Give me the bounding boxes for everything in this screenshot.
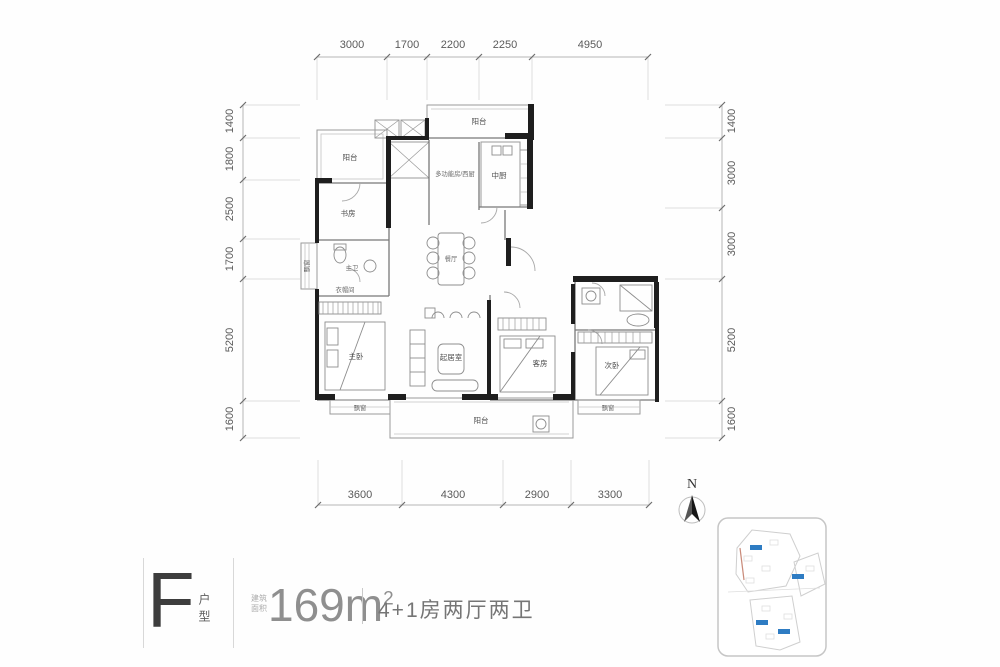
room-label-balcony-tl: 阳台: [343, 152, 358, 162]
dimension-left: 1400 1800 2500 1700 5200 1600: [224, 102, 300, 441]
dim-label: 2500: [224, 197, 236, 221]
dim-label: 1600: [224, 407, 236, 431]
room-label-multi: 多功能房/西厨: [435, 169, 475, 178]
dimension-right: 1400 3000 3000 5200 1600: [665, 102, 738, 441]
room-label-master-bath: 主卫: [346, 263, 359, 272]
dim-label: 2900: [525, 489, 549, 501]
dim-label: 4300: [441, 489, 465, 501]
room-label-bay-master: 飘窗: [354, 403, 367, 412]
dim-label: 3300: [598, 489, 622, 501]
room-label-living: 起居室: [440, 352, 463, 362]
dimension-top: 3000 1700 2200 2250 4950: [314, 39, 651, 100]
room-label-guest: 客房: [533, 358, 548, 368]
dim-label: 1700: [224, 247, 236, 271]
room-label-balcony-tr: 阳台: [472, 116, 487, 126]
dim-label: 5200: [726, 328, 738, 352]
site-map-inset: [718, 518, 826, 656]
building-marker: [750, 545, 762, 550]
room-label-kitchen: 中厨: [492, 170, 507, 180]
room-label-closet: 衣帽间: [336, 285, 355, 294]
compass-n-label: N: [687, 477, 697, 492]
dim-label: 1700: [395, 39, 419, 51]
room-label-balcony-b: 阳台: [474, 415, 489, 425]
room-label-second: 次卧: [605, 360, 620, 370]
room-label-dining: 餐厅: [445, 254, 458, 263]
room-label-bay-second: 飘窗: [602, 403, 615, 412]
building-marker: [792, 574, 804, 579]
dim-label: 4950: [578, 39, 602, 51]
room-label-master-bed: 主卧: [349, 351, 364, 361]
dimension-bottom: 3600 4300 2900 3300: [315, 460, 652, 508]
dim-label: 1400: [726, 109, 738, 133]
dim-label: 1800: [224, 147, 236, 171]
plan-doors: [342, 183, 605, 344]
building-marker: [756, 620, 768, 625]
room-label-bay-left: 飘窗: [302, 260, 311, 273]
dim-label: 3600: [348, 489, 372, 501]
dim-label: 1400: [224, 109, 236, 133]
dim-label: 3000: [340, 39, 364, 51]
dim-label: 5200: [224, 328, 236, 352]
dim-label: 3000: [726, 232, 738, 256]
floorplan-canvas: 3000 1700 2200 2250 4950 3600 4300 2900 …: [0, 0, 1000, 667]
compass: N: [679, 477, 705, 523]
floorplan-page: 3000 1700 2200 2250 4950 3600 4300 2900 …: [0, 0, 1000, 667]
dim-label: 3000: [726, 161, 738, 185]
dim-label: 2250: [493, 39, 517, 51]
dim-label: 1600: [726, 407, 738, 431]
dim-label: 2200: [441, 39, 465, 51]
room-label-study: 书房: [341, 208, 356, 218]
building-marker: [778, 629, 790, 634]
